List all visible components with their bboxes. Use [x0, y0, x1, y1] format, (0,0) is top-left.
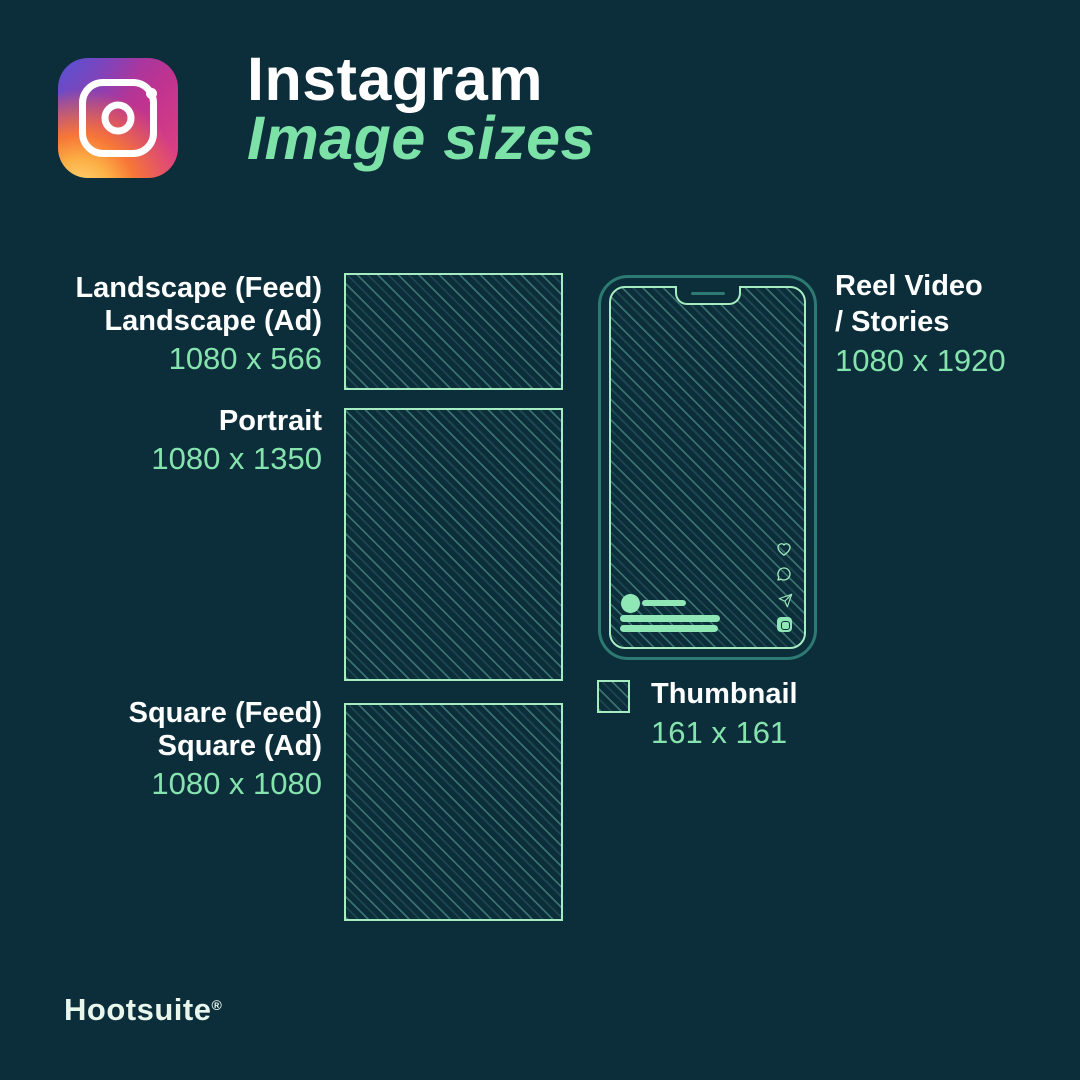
caption-placeholder-bar — [620, 625, 718, 632]
camera-flash-dot — [146, 88, 157, 99]
size-dimensions: 1080 x 1350 — [151, 441, 322, 477]
size-name: Square (Ad) — [129, 730, 322, 763]
size-name: Thumbnail — [651, 676, 798, 712]
page-subtitle: Image sizes — [247, 109, 595, 168]
speaker-icon — [691, 292, 725, 295]
caption-placeholder-bar — [620, 615, 720, 622]
heart-icon — [775, 540, 793, 558]
audio-tile-icon — [777, 617, 792, 632]
landscape-aspect-box — [344, 273, 563, 390]
size-name: Reel Video — [835, 268, 1006, 304]
landscape-label: Landscape (Feed) Landscape (Ad) 1080 x 5… — [75, 272, 322, 377]
size-name: / Stories — [835, 304, 1006, 340]
square-aspect-box — [344, 703, 563, 921]
reel-stories-label: Reel Video / Stories 1080 x 1920 — [835, 268, 1006, 379]
header: Instagram Image sizes — [247, 50, 595, 168]
instagram-image-sizes-infographic: Instagram Image sizes Landscape (Feed) L… — [0, 0, 1080, 1080]
camera-lens — [102, 102, 135, 135]
size-name: Square (Feed) — [129, 697, 322, 730]
size-name: Landscape (Feed) — [75, 272, 322, 305]
brand-name: Hootsuite — [64, 992, 211, 1027]
phone-frame — [598, 275, 817, 660]
registered-mark: ® — [211, 997, 222, 1013]
comment-icon — [775, 565, 793, 583]
phone-screen — [609, 286, 806, 649]
thumbnail-aspect-box — [597, 680, 630, 713]
thumbnail-label: Thumbnail 161 x 161 — [651, 676, 798, 751]
size-dimensions: 1080 x 1080 — [129, 766, 322, 802]
size-dimensions: 1080 x 1920 — [835, 343, 1006, 379]
brand-wordmark: Hootsuite® — [64, 992, 222, 1028]
page-title: Instagram — [247, 50, 595, 109]
size-dimensions: 1080 x 566 — [75, 341, 322, 377]
size-dimensions: 161 x 161 — [651, 715, 798, 751]
square-label: Square (Feed) Square (Ad) 1080 x 1080 — [129, 697, 322, 802]
size-name: Portrait — [151, 405, 322, 438]
paper-plane-icon — [778, 593, 793, 608]
avatar — [621, 594, 640, 613]
username-placeholder-bar — [642, 600, 686, 606]
phone-notch — [675, 286, 741, 305]
portrait-aspect-box — [344, 408, 563, 681]
portrait-label: Portrait 1080 x 1350 — [151, 405, 322, 477]
size-name: Landscape (Ad) — [75, 305, 322, 338]
instagram-logo-icon — [58, 58, 178, 178]
